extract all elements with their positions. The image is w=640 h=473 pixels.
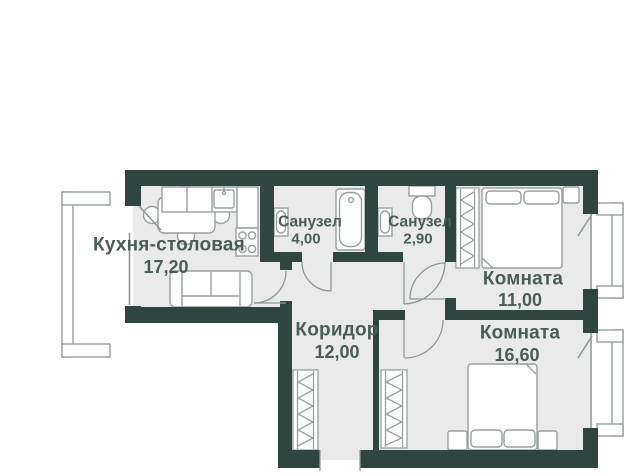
room-area-bathroom-1: 4,00 <box>291 232 320 247</box>
wall-bath-bottom <box>333 252 403 262</box>
nightstand-icon <box>448 431 467 450</box>
pillow-icon <box>524 191 559 204</box>
wardrobe-icon <box>293 370 318 450</box>
nightstand-icon <box>563 187 579 203</box>
wall-room-divider <box>445 310 598 320</box>
nightstand-icon <box>538 431 557 450</box>
wardrobe-icon <box>381 370 407 448</box>
room-label-kitchen: Кухня-столовая <box>93 236 245 255</box>
wall-kitchen-door <box>280 252 292 270</box>
wardrobe-icon <box>456 188 479 268</box>
pillow-icon <box>486 191 521 204</box>
room-area-corridor: 12,00 <box>314 343 359 361</box>
room-label-room-2: Комната <box>480 324 560 343</box>
wall-right <box>583 428 598 468</box>
floor-plan: Кухня-столовая 17,20 Санузел 4,00 Санузе… <box>0 0 640 473</box>
room-area-bathroom-2: 2,90 <box>403 232 432 247</box>
room-area-room-1: 11,00 <box>498 291 542 309</box>
room-area-kitchen: 17,20 <box>143 258 188 276</box>
pillow-icon <box>471 430 502 447</box>
wall-bottom <box>360 450 598 468</box>
room-area-room-2: 16,60 <box>494 346 539 364</box>
room-label-room-1: Комната <box>483 270 563 289</box>
balcony-right-top <box>597 203 623 298</box>
balcony-left <box>62 192 110 357</box>
wall-left <box>125 170 141 206</box>
room-label-bathroom-1: Санузел <box>278 214 342 230</box>
room-label-corridor: Коридор <box>295 321 378 340</box>
wall-kitchen-bottom <box>125 307 292 323</box>
wall-bottom <box>278 450 320 468</box>
wall-top <box>125 170 598 186</box>
wall-bath1-left <box>260 186 274 256</box>
balcony-right-bottom <box>597 330 623 436</box>
pillow-icon <box>504 430 535 447</box>
wall-kitchen-door <box>280 301 292 307</box>
wall-corridor-left <box>278 307 292 452</box>
wall-right <box>583 170 598 214</box>
room-label-bathroom-2: Санузел <box>388 214 452 230</box>
wall-between-bathrooms <box>365 186 378 256</box>
